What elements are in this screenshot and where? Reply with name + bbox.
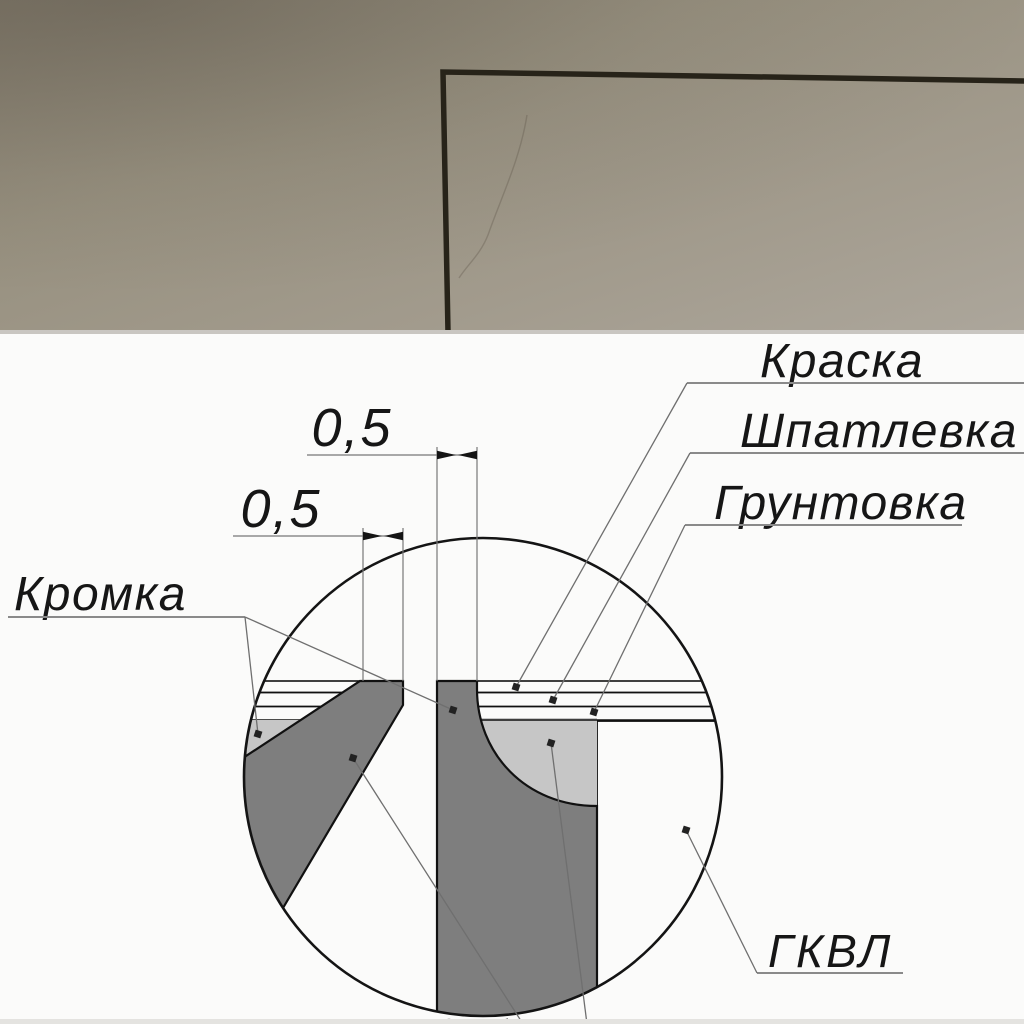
board-label: ГКВЛ [768, 925, 893, 977]
photo-diagram-divider [0, 330, 1024, 334]
dimension-value-left: 0,5 [240, 479, 321, 539]
paint-label: Краска [760, 335, 924, 388]
edge-label: Кромка [14, 568, 187, 621]
primer-label: Грунтовка [714, 477, 968, 530]
screenshot-root: 0,5 0,5 Краска Шпатлевка Грунтовка [0, 0, 1024, 1024]
photo-vignette [0, 0, 1024, 330]
bottom-edge-strip [0, 1019, 1024, 1024]
dimension-value-top: 0,5 [311, 398, 392, 458]
photo-section [0, 0, 1024, 334]
filler-label: Шпатлевка [740, 405, 1018, 458]
detail-drawing-section: 0,5 0,5 Краска Шпатлевка Грунтовка [0, 334, 1024, 1024]
composite-image: 0,5 0,5 Краска Шпатлевка Грунтовка [0, 0, 1024, 1024]
